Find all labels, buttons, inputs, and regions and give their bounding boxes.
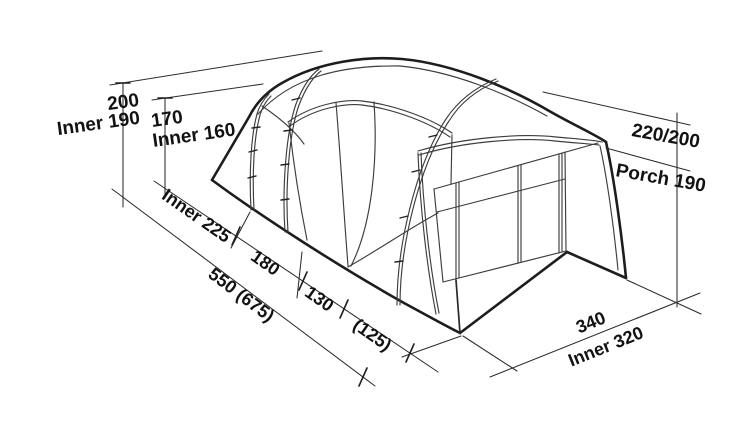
extension-front-corner-width [463,336,517,371]
front-wall-left-edge [434,189,443,282]
width-rail [490,293,700,377]
porch-right-wall-inner-edge [600,146,618,270]
dim-label-inner-190: Inner 190 [56,108,142,140]
front-wall-right-edge [565,152,566,251]
inner-canopy-left-strut [289,123,307,240]
dim-label-125: (125) [349,315,395,355]
pole-clip [284,130,292,131]
porch-skirt-left-edge [456,280,460,333]
tent-dimension-diagram: 200 Inner 190 170 Inner 160 220/200 Porc… [0,0,750,426]
dim-label-inner-225: Inner 225 [158,185,234,247]
dim-label-340: 340 [573,308,608,338]
tent-drawing [212,58,626,333]
porch-front-wall [434,143,598,282]
pole-clip [292,98,300,100]
pole-clip [252,127,260,128]
tick [340,300,348,318]
dim-label-porch-190: Porch 190 [614,160,707,196]
pole-clip [400,216,408,218]
pole-clip [281,199,289,200]
pole-clip [248,176,256,178]
rear-arch-interior-seam [262,106,304,144]
pole-clip [281,164,289,165]
extension-pole-mid [297,252,302,298]
dim-label-180: 180 [247,246,283,280]
door-drape-left [336,103,348,266]
door-drape-right [351,102,375,266]
extension-front-corner-length [402,336,461,357]
dimension-labels: 200 Inner 190 170 Inner 160 220/200 Porc… [56,90,708,371]
dim-label-220-200: 220/200 [630,120,701,153]
tick [299,272,307,290]
porch-roof-curve-inner [419,140,599,155]
tent-diagram-svg: 200 Inner 190 170 Inner 160 220/200 Porc… [0,0,750,426]
tick [359,368,367,386]
dim-label-130: 130 [301,282,337,316]
inner-canopy-right-drop [451,135,452,184]
pole-clip [395,261,403,262]
pole-clip [249,150,257,152]
inner-canopy-arch-outer [288,101,452,133]
tent-rear-edge-and-ridge [212,58,606,180]
inner-canopy-arch-inner [290,105,450,137]
pole-rear-b [253,96,271,210]
